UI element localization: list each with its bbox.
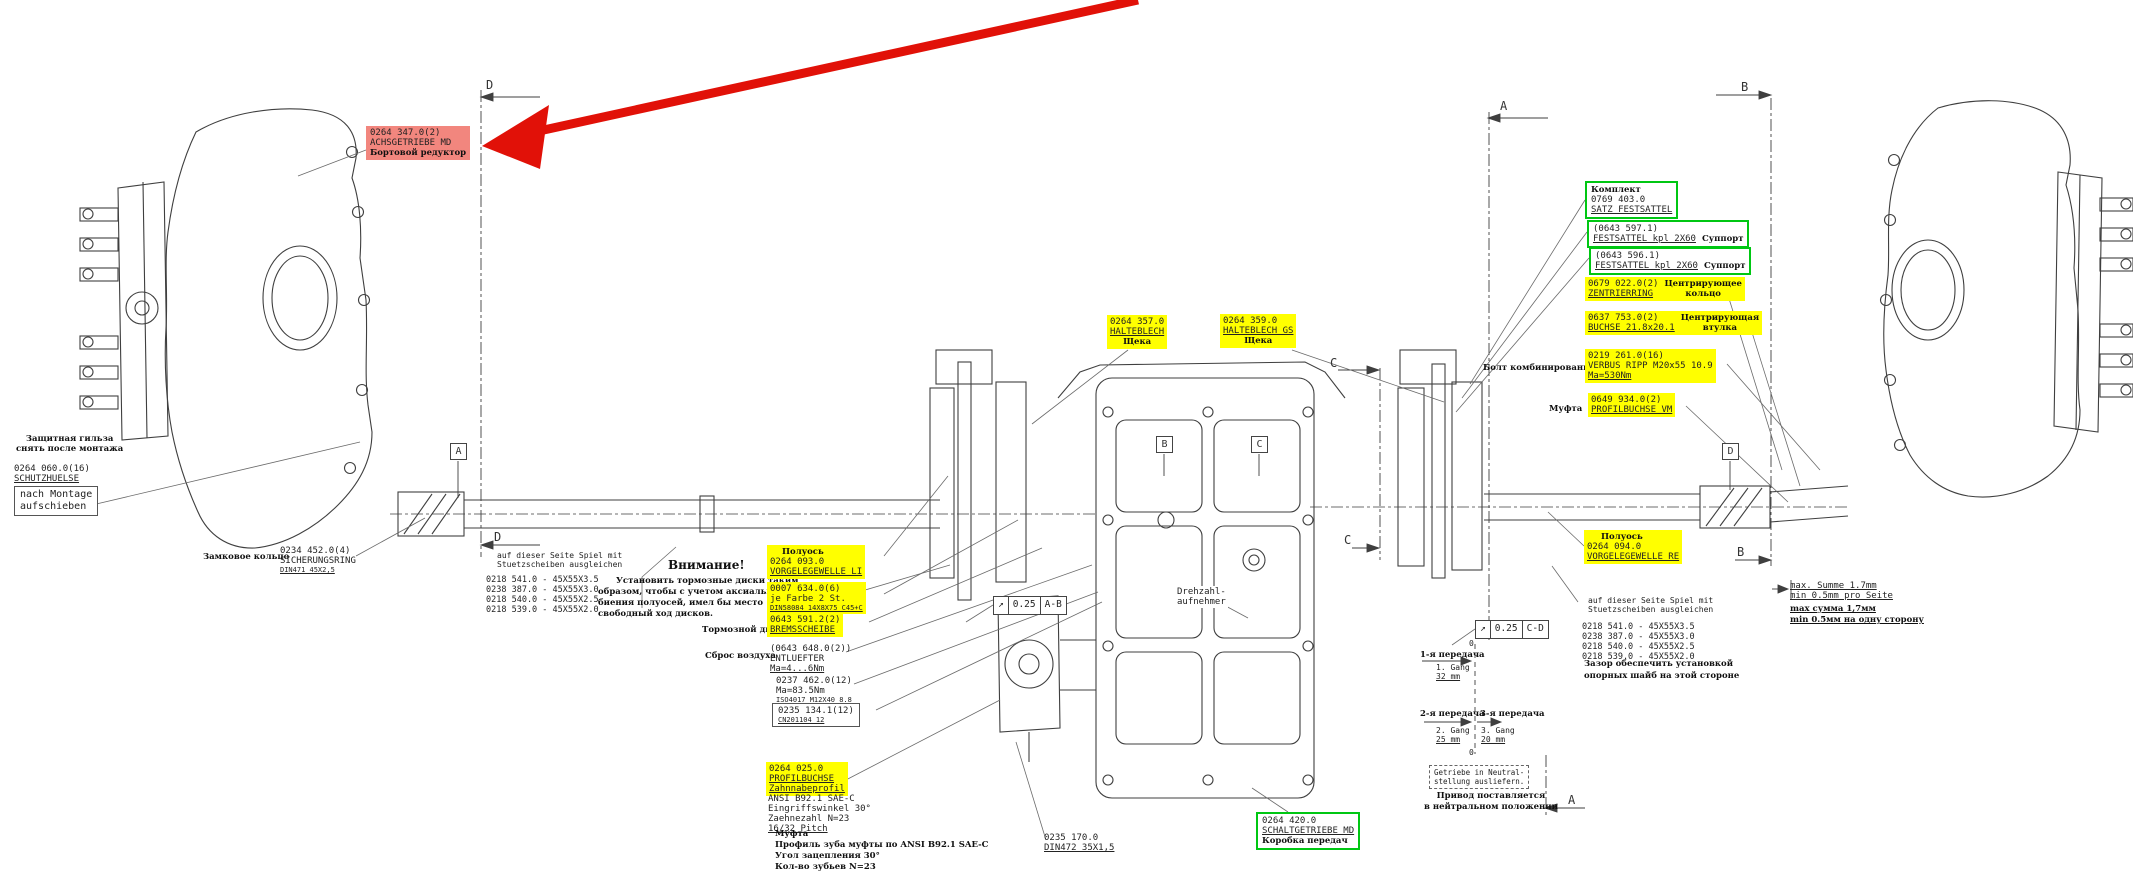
part-standard: DIN472 35X1,5 xyxy=(1044,843,1114,853)
callout-buchse: 0637 753.0(2) BUCHSE 21.8x20.1 Центрирую… xyxy=(1585,311,1762,335)
callout-caliper-1: (0643 597.1) FESTSATTEL kpl 2X60 Суппорт xyxy=(1587,220,1749,248)
part-name: SCHUTZHUELSE xyxy=(14,474,90,484)
part-name-ru: Суппорт xyxy=(1704,261,1746,271)
gear-3-value: 3. Gang 20 mm xyxy=(1481,726,1515,744)
section-c-top: C xyxy=(1330,356,1337,370)
callout-halteblech-2: 0264 359.0 HALTEBLECH GS Щека xyxy=(1220,314,1296,348)
part-number: 0637 753.0(2) xyxy=(1588,313,1675,323)
gear-1-value: 1. Gang 32 mm xyxy=(1436,663,1470,681)
axle-assembly-drawing: 0264 347.0(2) ACHSGETRIEBE MD Бортовой р… xyxy=(0,0,2133,895)
part-number: 0219 261.0(16) xyxy=(1588,351,1713,361)
callout-washer: 0235 134.1(12) CN201104 12 xyxy=(772,703,860,727)
callout-bolt-m12: 0237 462.0(12) Ma=83.5Nm ISO4017 M12X40 … xyxy=(776,676,852,704)
callout-schutzhuelse: 0264 060.0(16) SCHUTZHUELSE xyxy=(14,464,90,484)
part-name: VORGELEGEWELLE RE xyxy=(1587,552,1679,562)
part-number: 0264 420.0 xyxy=(1262,816,1354,826)
note-nach-montage: nach Montage aufschieben xyxy=(14,486,98,516)
part-number: 0264 060.0(16) xyxy=(14,464,90,474)
section-d-bottom: D xyxy=(494,530,501,544)
part-name: FESTSATTEL kpl 2X60 xyxy=(1593,234,1696,244)
callout-axle-left: Полуось 0264 093.0 VORGELEGEWELLE LI xyxy=(767,545,865,579)
part-number: 0264 093.0 xyxy=(770,557,862,567)
shim-note-right-ru: Зазор обеспечить установкой опорных шайб… xyxy=(1584,658,1739,682)
part-name-ru: Щека xyxy=(1110,337,1164,347)
datum-c: C xyxy=(1251,436,1268,453)
gear-2-label-ru: 2-я передача xyxy=(1420,709,1485,719)
shim-list-left: 0218 541.0 - 45X55X3.5 0238 387.0 - 45X5… xyxy=(486,575,599,615)
part-number: 0643 591.2(2) xyxy=(770,615,840,625)
callout-farbe: 0007 634.0(6) je Farbe 2 St. DIN58084 14… xyxy=(767,582,866,614)
torque-value: Ma=4...6Nm xyxy=(770,664,851,674)
runout-symbol: ↗ xyxy=(994,597,1008,614)
callout-halteblech-1: 0264 357.0 HALTEBLECH Щека xyxy=(1107,315,1167,349)
gear-3-label-ru: 3-я передача xyxy=(1480,709,1545,719)
callout-verbus: 0219 261.0(16) VERBUS RIPP M20x55 10.9 M… xyxy=(1585,349,1716,383)
part-name: BREMSSCHEIBE xyxy=(770,625,840,635)
runout-symbol: ↗ xyxy=(1476,621,1490,638)
left-final-drive xyxy=(80,109,372,548)
label-ring-ru: Замковое кольцо xyxy=(203,552,289,562)
part-name-ru: Щека xyxy=(1223,336,1293,346)
red-pointer-arrow xyxy=(482,0,1138,169)
callout-sicherungsring: 0234 452.0(4) SICHERUNGSRING DIN471 45X2… xyxy=(280,546,356,574)
right-axle-shaft xyxy=(1310,486,1850,528)
callout-bremsscheibe: 0643 591.2(2) BREMSSCHEIBE xyxy=(767,613,843,637)
part-name: SICHERUNGSRING xyxy=(280,556,356,566)
gear-2-value: 2. Gang 25 mm xyxy=(1436,726,1470,744)
part-name: PROFILBUCHSE VM xyxy=(1591,405,1672,415)
right-brake-assembly xyxy=(1398,350,1482,578)
part-number: 0235 170.0 xyxy=(1044,833,1114,843)
part-name: ZENTRIERRING xyxy=(1588,289,1658,299)
drawing-linework xyxy=(0,0,2133,895)
part-number: 0235 134.1(12) xyxy=(778,706,854,716)
callout-schaltgetriebe: 0264 420.0 SCHALTGETRIEBE MD Коробка пер… xyxy=(1256,812,1360,850)
callout-axle-right: Полуось 0264 094.0 VORGELEGEWELLE RE xyxy=(1584,530,1682,564)
gear-gate-bottom-mark: 0 xyxy=(1469,748,1474,758)
callout-caliper-2: (0643 596.1) FESTSATTEL kpl 2X60 Суппорт xyxy=(1589,247,1751,275)
profilbuchse-specs: ANSI B92.1 SAE-C Eingriffswinkel 30° Zae… xyxy=(768,794,871,834)
callout-profilbuchse-vm: 0649 934.0(2) PROFILBUCHSE VM xyxy=(1588,393,1675,417)
tolerance-value: 0.25 xyxy=(1008,597,1040,614)
attention-title: Внимание! xyxy=(668,559,745,572)
datum-b: B xyxy=(1156,436,1173,453)
section-a-top: A xyxy=(1500,99,1507,113)
part-standard: DIN58084 14X8X75 C45+C xyxy=(770,604,863,612)
part-number: (0643 648.0(2)) xyxy=(770,644,851,654)
torque-value: Ma=83.5Nm xyxy=(776,686,852,696)
dimension-summe: max. Summe 1.7mm min 0.5mm pro Seite xyxy=(1790,581,1893,601)
part-standard: DIN471 45X2,5 xyxy=(280,566,356,574)
part-name: PROFILBUCHSE xyxy=(769,774,845,784)
tolerance-frame-ab: ↗ 0.25 A-B xyxy=(993,596,1067,615)
datum-d: D xyxy=(1722,443,1739,460)
section-a-bottom: A xyxy=(1568,793,1575,807)
part-name: HALTEBLECH xyxy=(1110,327,1164,337)
part-standard: CN201104 12 xyxy=(778,716,854,724)
datum-reference: A-B xyxy=(1040,597,1066,614)
part-name-ru: Коробка передач xyxy=(1262,836,1354,846)
right-final-drive xyxy=(1881,101,2133,497)
callout-achsgetriebe: 0264 347.0(2) ACHSGETRIEBE MD Бортовой р… xyxy=(366,126,470,160)
label-muffe-ru: Муфта xyxy=(1549,404,1582,414)
part-number: 0679 022.0(2) xyxy=(1588,279,1658,289)
part-name: VERBUS RIPP M20x55 10.9 xyxy=(1588,361,1713,371)
part-number: 0769 403.0 xyxy=(1591,195,1672,205)
callout-caliper-set: Комплект 0769 403.0 SATZ FESTSATTEL xyxy=(1585,181,1678,219)
part-name-ru: Суппорт xyxy=(1702,234,1744,244)
part-number: 0007 634.0(6) xyxy=(770,584,863,594)
gear-gate-top-mark: 0 xyxy=(1469,639,1474,649)
datum-a: A xyxy=(450,443,467,460)
part-name: SCHALTGETRIEBE MD xyxy=(1262,826,1354,836)
profilbuchse-specs-ru: Муфта Профиль зуба муфты по ANSI B92.1 S… xyxy=(775,829,988,873)
part-number: (0643 596.1) xyxy=(1595,251,1745,261)
part-name: HALTEBLECH GS xyxy=(1223,326,1293,336)
callout-zentrierring: 0679 022.0(2) ZENTRIERRING Центрирующее … xyxy=(1585,277,1745,301)
dimension-summe-ru: max сумма 1,7мм min 0.5мм на одну сторон… xyxy=(1790,604,1924,626)
shim-note-right: auf dieser Seite Spiel mit Stuetzscheibe… xyxy=(1588,596,1713,614)
part-number: 0237 462.0(12) xyxy=(776,676,852,686)
label-speed-sensor: Drehzahl- aufnehmer xyxy=(1175,586,1228,608)
leader-lines xyxy=(92,150,1820,840)
note-neutral-ru: Привод поставляется в нейтральном положе… xyxy=(1424,791,1558,813)
section-b-top: B xyxy=(1741,80,1748,94)
section-b-bottom: B xyxy=(1737,545,1744,559)
part-number: 0264 359.0 xyxy=(1223,316,1293,326)
part-number: 0649 934.0(2) xyxy=(1591,395,1672,405)
shim-list-right: 0218 541.0 - 45X55X3.5 0238 387.0 - 45X5… xyxy=(1582,622,1695,662)
part-number: 0234 452.0(4) xyxy=(280,546,356,556)
datum-reference: C-D xyxy=(1522,621,1548,638)
tolerance-frame-cd: ↗ 0.25 C-D xyxy=(1475,620,1549,639)
section-c-bottom: C xyxy=(1344,533,1351,547)
part-name: SATZ FESTSATTEL xyxy=(1591,205,1672,215)
note-neutral: Getriebe in Neutral- stellung ausliefern… xyxy=(1429,765,1529,789)
part-number: 0264 094.0 xyxy=(1587,542,1679,552)
part-name: FESTSATTEL kpl 2X60 xyxy=(1595,261,1698,271)
part-number: 0264 025.0 xyxy=(769,764,845,774)
callout-profilbuchse: 0264 025.0 PROFILBUCHSE Zahnnabeprofil xyxy=(766,762,848,796)
gear-1-label-ru: 1-я передача xyxy=(1420,650,1485,660)
section-d-top: D xyxy=(486,78,493,92)
part-name: ACHSGETRIEBE MD xyxy=(370,138,466,148)
label-vent-ru: Сброс воздуха xyxy=(705,651,776,661)
part-number: 0264 357.0 xyxy=(1110,317,1164,327)
callout-circlip: 0235 170.0 DIN472 35X1,5 xyxy=(1044,833,1114,853)
part-name: BUCHSE 21.8x20.1 xyxy=(1588,323,1675,333)
shim-note-left: auf dieser Seite Spiel mit Stuetzscheibe… xyxy=(497,551,622,569)
left-brake-assembly xyxy=(930,350,1026,600)
part-name-ru: Бортовой редуктор xyxy=(370,148,466,158)
part-number: 0264 347.0(2) xyxy=(370,128,466,138)
part-number: (0643 597.1) xyxy=(1593,224,1743,234)
tolerance-value: 0.25 xyxy=(1490,621,1522,638)
part-name: VORGELEGEWELLE LI xyxy=(770,567,862,577)
part-name: ENTLUEFTER xyxy=(770,654,851,664)
callout-sleeve-ru: Защитная гильза снять после монтажа xyxy=(16,434,123,454)
callout-entluefter: (0643 648.0(2)) ENTLUEFTER Ma=4...6Nm xyxy=(770,644,851,674)
torque-value: Ma=530Nm xyxy=(1588,371,1713,381)
